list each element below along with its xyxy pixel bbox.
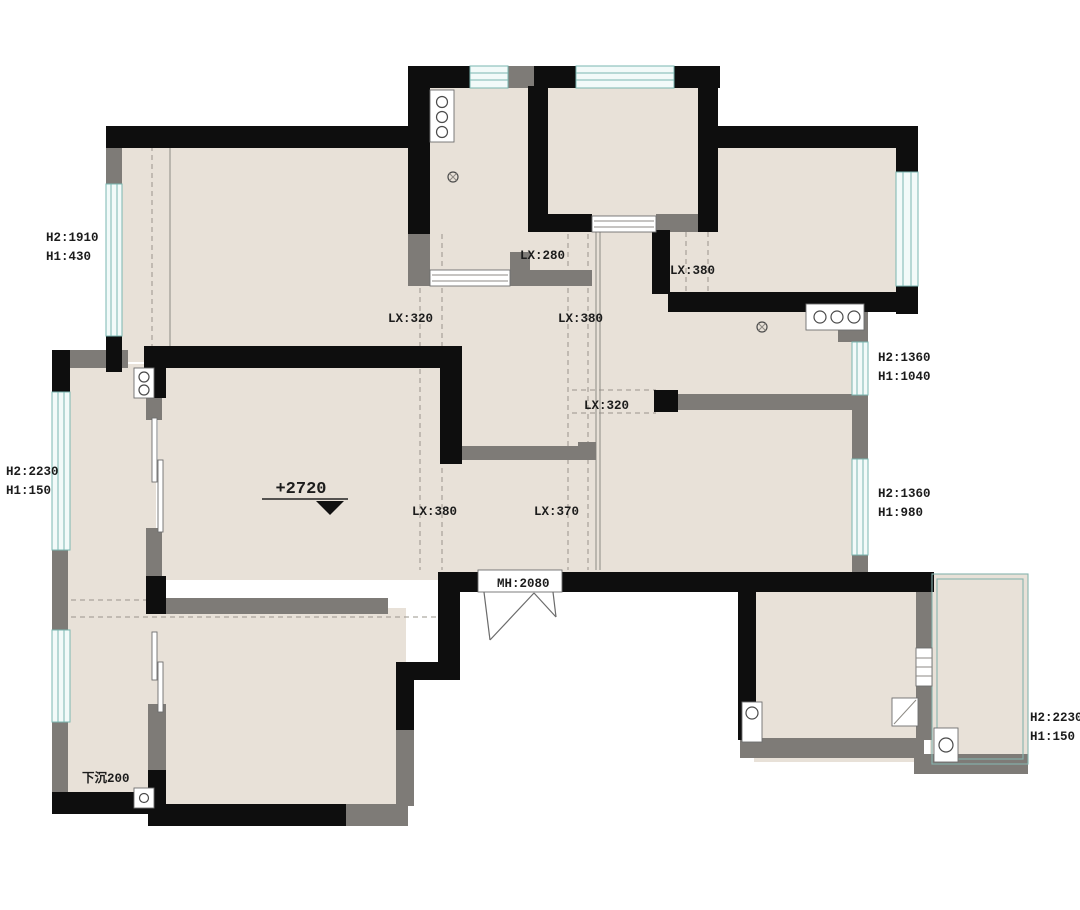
wall-segment: [52, 606, 68, 630]
wall-segment: [52, 350, 70, 392]
wall-segment: [740, 738, 924, 758]
wall-segment: [652, 230, 670, 294]
window-label: H2:1360: [878, 487, 931, 501]
wall-segment: [528, 214, 592, 232]
wall-segment: [674, 66, 720, 88]
room-floor: [66, 364, 156, 612]
wall-segment: [106, 336, 122, 372]
room-floor: [540, 86, 706, 234]
kitchen-door: [430, 270, 510, 286]
wall-segment: [144, 346, 462, 368]
wall-segment: [396, 662, 442, 680]
beam-label: LX:280: [520, 249, 565, 263]
wall-segment: [146, 576, 166, 614]
window-kitchen-top: [470, 66, 508, 88]
wall-segment: [668, 292, 918, 312]
window-label: H1:430: [46, 250, 91, 264]
wall-segment: [852, 555, 868, 574]
wall-segment: [52, 722, 68, 794]
wall-segment: [656, 214, 700, 232]
wall-segment: [716, 126, 918, 148]
sunken-label: 下沉200: [82, 770, 130, 786]
wall-segment: [408, 232, 430, 286]
wall-segment: [344, 804, 408, 826]
elevation-label: +2720: [275, 480, 326, 499]
beam-label: LX:380: [670, 264, 715, 278]
wall-segment: [508, 66, 536, 88]
window-label: H1:980: [878, 506, 923, 520]
wall-segment: [560, 572, 934, 592]
room-floor: [154, 608, 406, 812]
window-right-lower: [852, 459, 868, 555]
room-floor: [754, 590, 924, 762]
wall-segment: [408, 66, 430, 234]
wall-segment: [440, 448, 462, 464]
sink-counter-icon: [806, 304, 864, 330]
drain-box-icon: [134, 788, 154, 808]
wall-segment: [438, 572, 480, 592]
wall-segment: [428, 66, 470, 88]
entry-door-label: MH:2080: [497, 577, 550, 591]
window-label: H2:2230: [6, 465, 59, 479]
wall-segment: [460, 446, 580, 460]
wall-segment: [528, 270, 592, 286]
window-left-top: [106, 184, 122, 336]
window-label: H1:1040: [878, 370, 931, 384]
beam-label: LX:320: [584, 399, 629, 413]
wall-segment: [164, 598, 388, 614]
bath-door: [592, 216, 656, 232]
shower-icon: [892, 698, 918, 726]
wall-segment: [440, 368, 462, 448]
wall-segment: [896, 126, 918, 172]
toilet-icon: [742, 702, 762, 742]
floor-plan-canvas: H2:1910 H1:430 H2:2230 H1:150 LX:280 LX:…: [0, 0, 1080, 910]
wall-segment: [578, 442, 596, 460]
window-label: H2:2230: [1030, 711, 1080, 725]
beam-label: LX:320: [388, 312, 433, 326]
window-label: H2:1910: [46, 231, 99, 245]
wall-segment: [916, 590, 932, 648]
wall-segment: [148, 704, 166, 772]
beam-label: LX:380: [412, 505, 457, 519]
wall-segment: [528, 86, 548, 232]
wall-segment: [396, 728, 414, 806]
window-bath-top: [576, 66, 674, 88]
window-left-bottom: [52, 630, 70, 722]
beam-label: LX:370: [534, 505, 579, 519]
wall-segment: [106, 126, 426, 148]
window-right-upper: [852, 342, 868, 395]
wall-segment: [534, 66, 576, 88]
window-label: H1:150: [1030, 730, 1075, 744]
wall-segment: [396, 680, 414, 730]
wall-segment: [146, 528, 162, 580]
window-label: H2:1360: [878, 351, 931, 365]
stove-icon: [430, 90, 454, 142]
wall-segment: [698, 86, 718, 232]
washer-icon: [934, 728, 958, 762]
window-label: H1:150: [6, 484, 51, 498]
wall-segment: [106, 144, 122, 184]
water-point-icon: [134, 368, 154, 398]
balcony-louver-door: [916, 648, 932, 686]
beam-label: LX:380: [558, 312, 603, 326]
window-bedroom-right: [896, 172, 918, 286]
wall-segment: [676, 394, 856, 410]
wall-segment: [654, 390, 678, 412]
wall-segment: [52, 550, 68, 610]
room-floor: [710, 140, 904, 304]
wall-segment: [148, 804, 346, 826]
